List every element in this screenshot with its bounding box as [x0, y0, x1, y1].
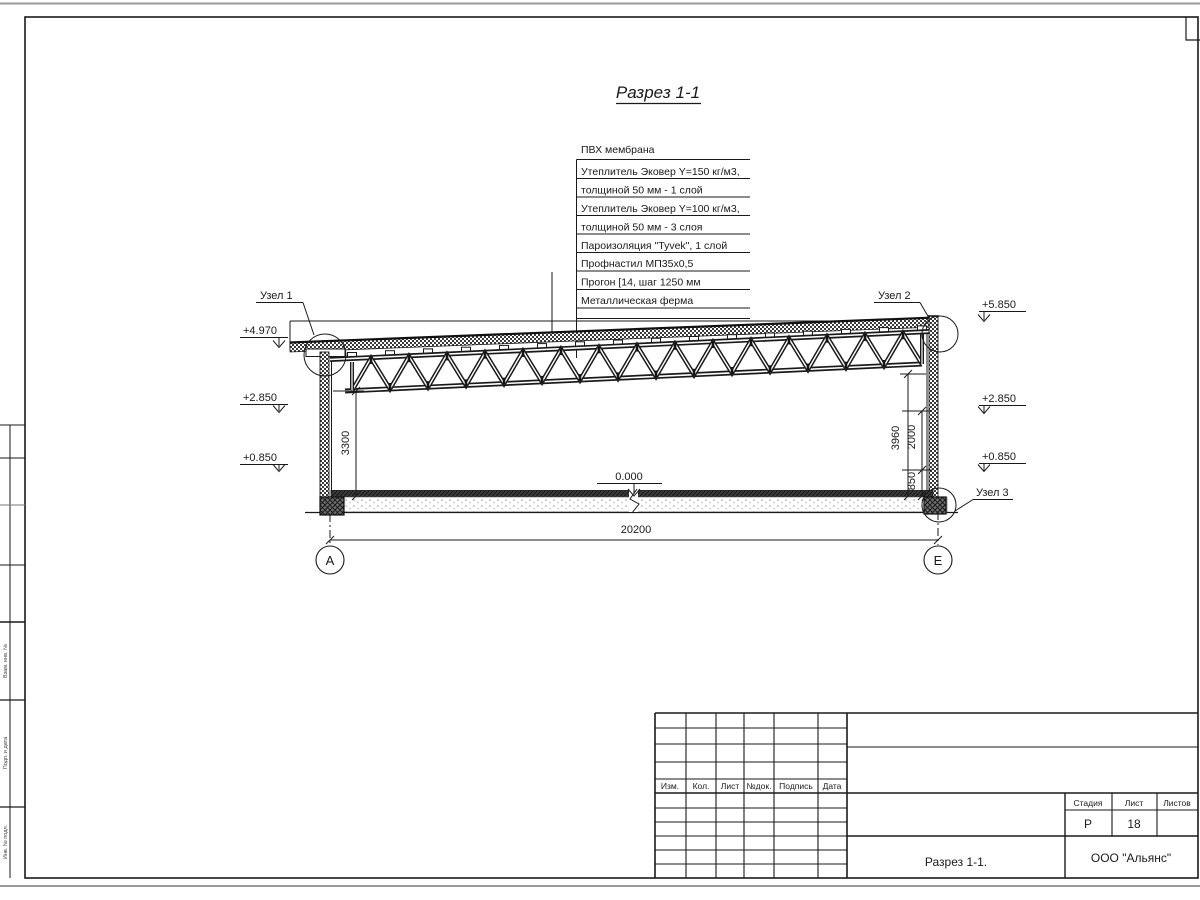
side-label-0: Взам. инв. №: [3, 644, 9, 678]
callout-membrane: ПВХ мембрана: [581, 144, 655, 156]
section-drawing: Взам. инв. № Подп. и дата Инв. № подл. Р…: [0, 0, 1200, 900]
dim-span: 20200: [621, 524, 652, 536]
elevation-right-low: +0.850: [982, 451, 1016, 463]
node-label-2: Узел 2: [878, 290, 911, 302]
tb-col-podpis: Подпись: [779, 781, 813, 791]
side-stamp-labels: Взам. инв. № Подп. и дата Инв. № подл.: [3, 644, 9, 859]
axis-letter-right: Е: [934, 553, 943, 568]
node-label-1: Узел 1: [260, 290, 293, 302]
tb-sheet-label: Лист: [1125, 798, 1144, 808]
drawing-sheet: Взам. инв. № Подп. и дата Инв. № подл. Р…: [0, 0, 1200, 900]
tb-sheets-label: Листов: [1163, 798, 1191, 808]
sheet-frame: [0, 4, 1200, 887]
tb-company: ООО "Альянс": [1091, 851, 1171, 865]
tb-col-data: Дата: [823, 781, 842, 791]
dim-right-total: 3960: [890, 426, 902, 450]
callout-row-5: Профнастил МП35х0,5: [581, 258, 693, 270]
side-label-2: Инв. № подл.: [3, 824, 9, 859]
foundation-left: [320, 497, 344, 515]
elevation-left-mid: +2.850: [243, 392, 277, 404]
title-text: Разрез 1-1: [616, 83, 700, 102]
callout-row-1: толщиной 50 мм - 1 слой: [581, 185, 703, 197]
tb-col-ndok: №док.: [747, 781, 772, 791]
dim-left-height: 3300: [340, 431, 352, 455]
tb-col-list: Лист: [721, 781, 740, 791]
callout-row-0: Утеплитель Эковер Y=150 кг/м3,: [581, 166, 740, 178]
tb-stage-label: Стадия: [1074, 798, 1103, 808]
dim-right-lower: 850: [906, 472, 918, 490]
callout-row-3: толщиной 50 мм - 3 слоя: [581, 222, 703, 234]
side-label-1: Подп. и дата: [3, 736, 9, 769]
callout-row-6: Прогон [14, шаг 1250 мм: [581, 277, 701, 289]
elevation-left-low: +0.850: [243, 452, 277, 464]
elevation-right-top: +5.850: [982, 299, 1016, 311]
tb-col-kol: Кол.: [693, 781, 710, 791]
elevation-zero: 0.000: [615, 471, 643, 483]
dimension-lines: [326, 370, 942, 545]
tb-drawing-name: Разрез 1-1.: [925, 855, 987, 869]
axis-bubbles: А Е: [316, 546, 952, 574]
tb-stage-value: Р: [1084, 817, 1092, 831]
dim-right-upper: 2000: [906, 425, 918, 449]
left-wall-panel: [320, 352, 329, 497]
elevation-left-top: +4.970: [243, 325, 277, 337]
callout-row-7: Металлическая ферма: [581, 295, 693, 307]
drawing-title: Разрез 1-1: [616, 83, 701, 104]
axis-letter-left: А: [326, 553, 335, 568]
tb-sheet-value: 18: [1127, 817, 1141, 831]
node-label-3: Узел 3: [976, 487, 1009, 499]
callout-row-2: Утеплитель Эковер Y=100 кг/м3,: [581, 203, 740, 215]
building-section: [290, 316, 958, 515]
foundation-right: [924, 497, 946, 514]
elevation-right-mid: +2.850: [982, 393, 1016, 405]
callout-row-4: Пароизоляция "Tyvek", 1 слой: [581, 240, 727, 252]
tb-col-izm: Изм.: [661, 781, 679, 791]
